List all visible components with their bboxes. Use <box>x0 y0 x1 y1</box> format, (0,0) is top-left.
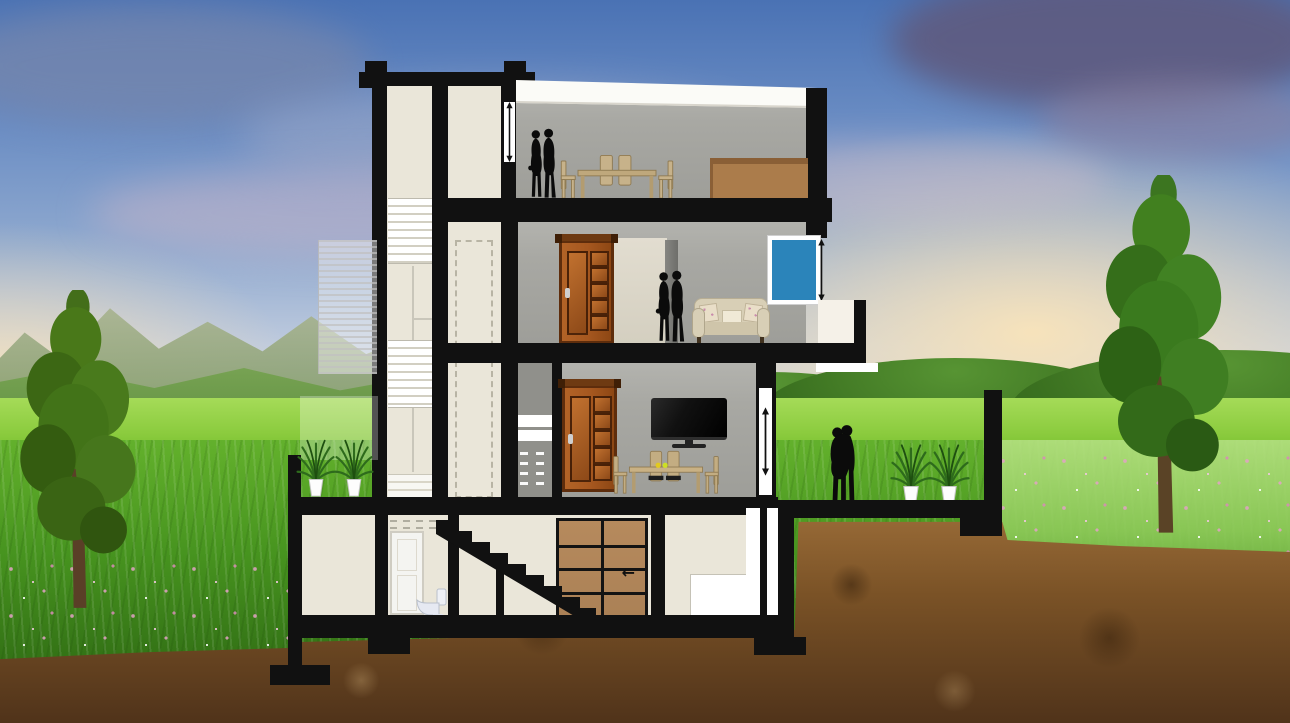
stair-railing-3 <box>412 408 414 472</box>
tree-right <box>1066 175 1266 535</box>
door-panel-2 <box>593 413 612 430</box>
lower-floor-dining-set <box>612 444 720 497</box>
door-cap-right <box>614 379 621 388</box>
store-room <box>302 515 375 623</box>
stair-landing-band-1 <box>518 415 554 427</box>
sofa-arm-left <box>692 308 705 338</box>
balcony-soffit <box>816 363 878 372</box>
window-dimension-arrow <box>816 239 827 301</box>
door-panel-3 <box>593 430 612 447</box>
service-duct-outline <box>455 240 493 498</box>
ground-left-wall <box>288 515 302 623</box>
terrace-wall-footing <box>960 516 1002 536</box>
door-panel-tall <box>567 251 588 335</box>
footing-1-base <box>270 665 330 685</box>
door-panel-4 <box>590 299 609 315</box>
door-lintel <box>558 379 621 386</box>
middle-floor-door <box>559 240 614 344</box>
door-panel-1 <box>590 251 609 267</box>
entry-wall-1 <box>760 508 767 616</box>
entry-door-strip <box>746 508 760 616</box>
terrace-right-wall <box>984 390 1002 518</box>
planter-plant-1 <box>296 428 336 498</box>
stair-dash-1 <box>520 452 552 455</box>
stair-railing-2 <box>412 318 432 320</box>
top-floor-couple <box>526 128 560 200</box>
door-panel-5 <box>590 315 609 331</box>
lower-floor-door <box>562 385 617 492</box>
footing-2-base <box>368 638 410 654</box>
ground-ceiling-slab <box>288 497 778 515</box>
footing-3-base <box>754 637 806 655</box>
door-panel-2 <box>590 267 609 283</box>
sofa-seat <box>698 322 764 335</box>
terrace-plant-2 <box>928 432 970 506</box>
terrace-plant-1 <box>890 432 932 506</box>
footing-1-stem <box>288 638 302 668</box>
ground-wall-1 <box>375 515 388 623</box>
stair-landing-band-2 <box>518 430 554 441</box>
floor-slab-middle <box>432 343 866 363</box>
bathroom-door-panel-top <box>397 539 417 571</box>
entry-step-block <box>690 574 748 616</box>
sofa-arm-right <box>757 308 770 338</box>
stair-dash-4 <box>520 482 552 485</box>
stair-flight-middle <box>388 340 432 408</box>
sideboard <box>710 158 808 198</box>
stair-flight-upper <box>388 198 432 264</box>
door-panel-5 <box>593 464 612 481</box>
door-panel-3 <box>590 283 609 299</box>
stair-railing-1 <box>412 266 414 340</box>
wall-dimension-arrow <box>760 390 771 493</box>
stair-dash-2 <box>520 462 552 465</box>
door-cap-left <box>555 234 562 243</box>
garage-arrow: ← <box>622 563 635 582</box>
terrace-couple <box>824 424 862 506</box>
balcony-parapet <box>818 300 856 345</box>
door-handle <box>565 288 570 298</box>
tree-left <box>0 290 160 610</box>
top-floor-dining-set <box>556 148 678 200</box>
tower-middle-wall <box>432 86 448 506</box>
tower-dimension-arrow <box>504 102 515 162</box>
architectural-section-scene: ← <box>0 0 1290 723</box>
planter-plant-2 <box>334 428 374 498</box>
blue-window <box>768 236 820 304</box>
door-panel-4 <box>593 447 612 464</box>
door-lintel <box>555 234 618 241</box>
door-panel-1 <box>593 396 612 413</box>
roof-band <box>516 76 818 110</box>
bottom-slab <box>288 615 794 638</box>
basement-staircase <box>436 516 602 623</box>
ground-wall-3 <box>651 515 665 623</box>
door-cap-right <box>611 234 618 243</box>
wall-tv <box>651 398 727 440</box>
louver-screen <box>318 240 377 374</box>
door-cap-left <box>558 379 565 388</box>
tower-stair-compartment <box>387 86 432 513</box>
floor-slab-top <box>432 198 832 222</box>
door-panel-tall <box>570 396 591 482</box>
stair-dash-3 <box>520 472 552 475</box>
door-handle <box>568 434 573 444</box>
middle-floor-couple <box>650 270 692 344</box>
